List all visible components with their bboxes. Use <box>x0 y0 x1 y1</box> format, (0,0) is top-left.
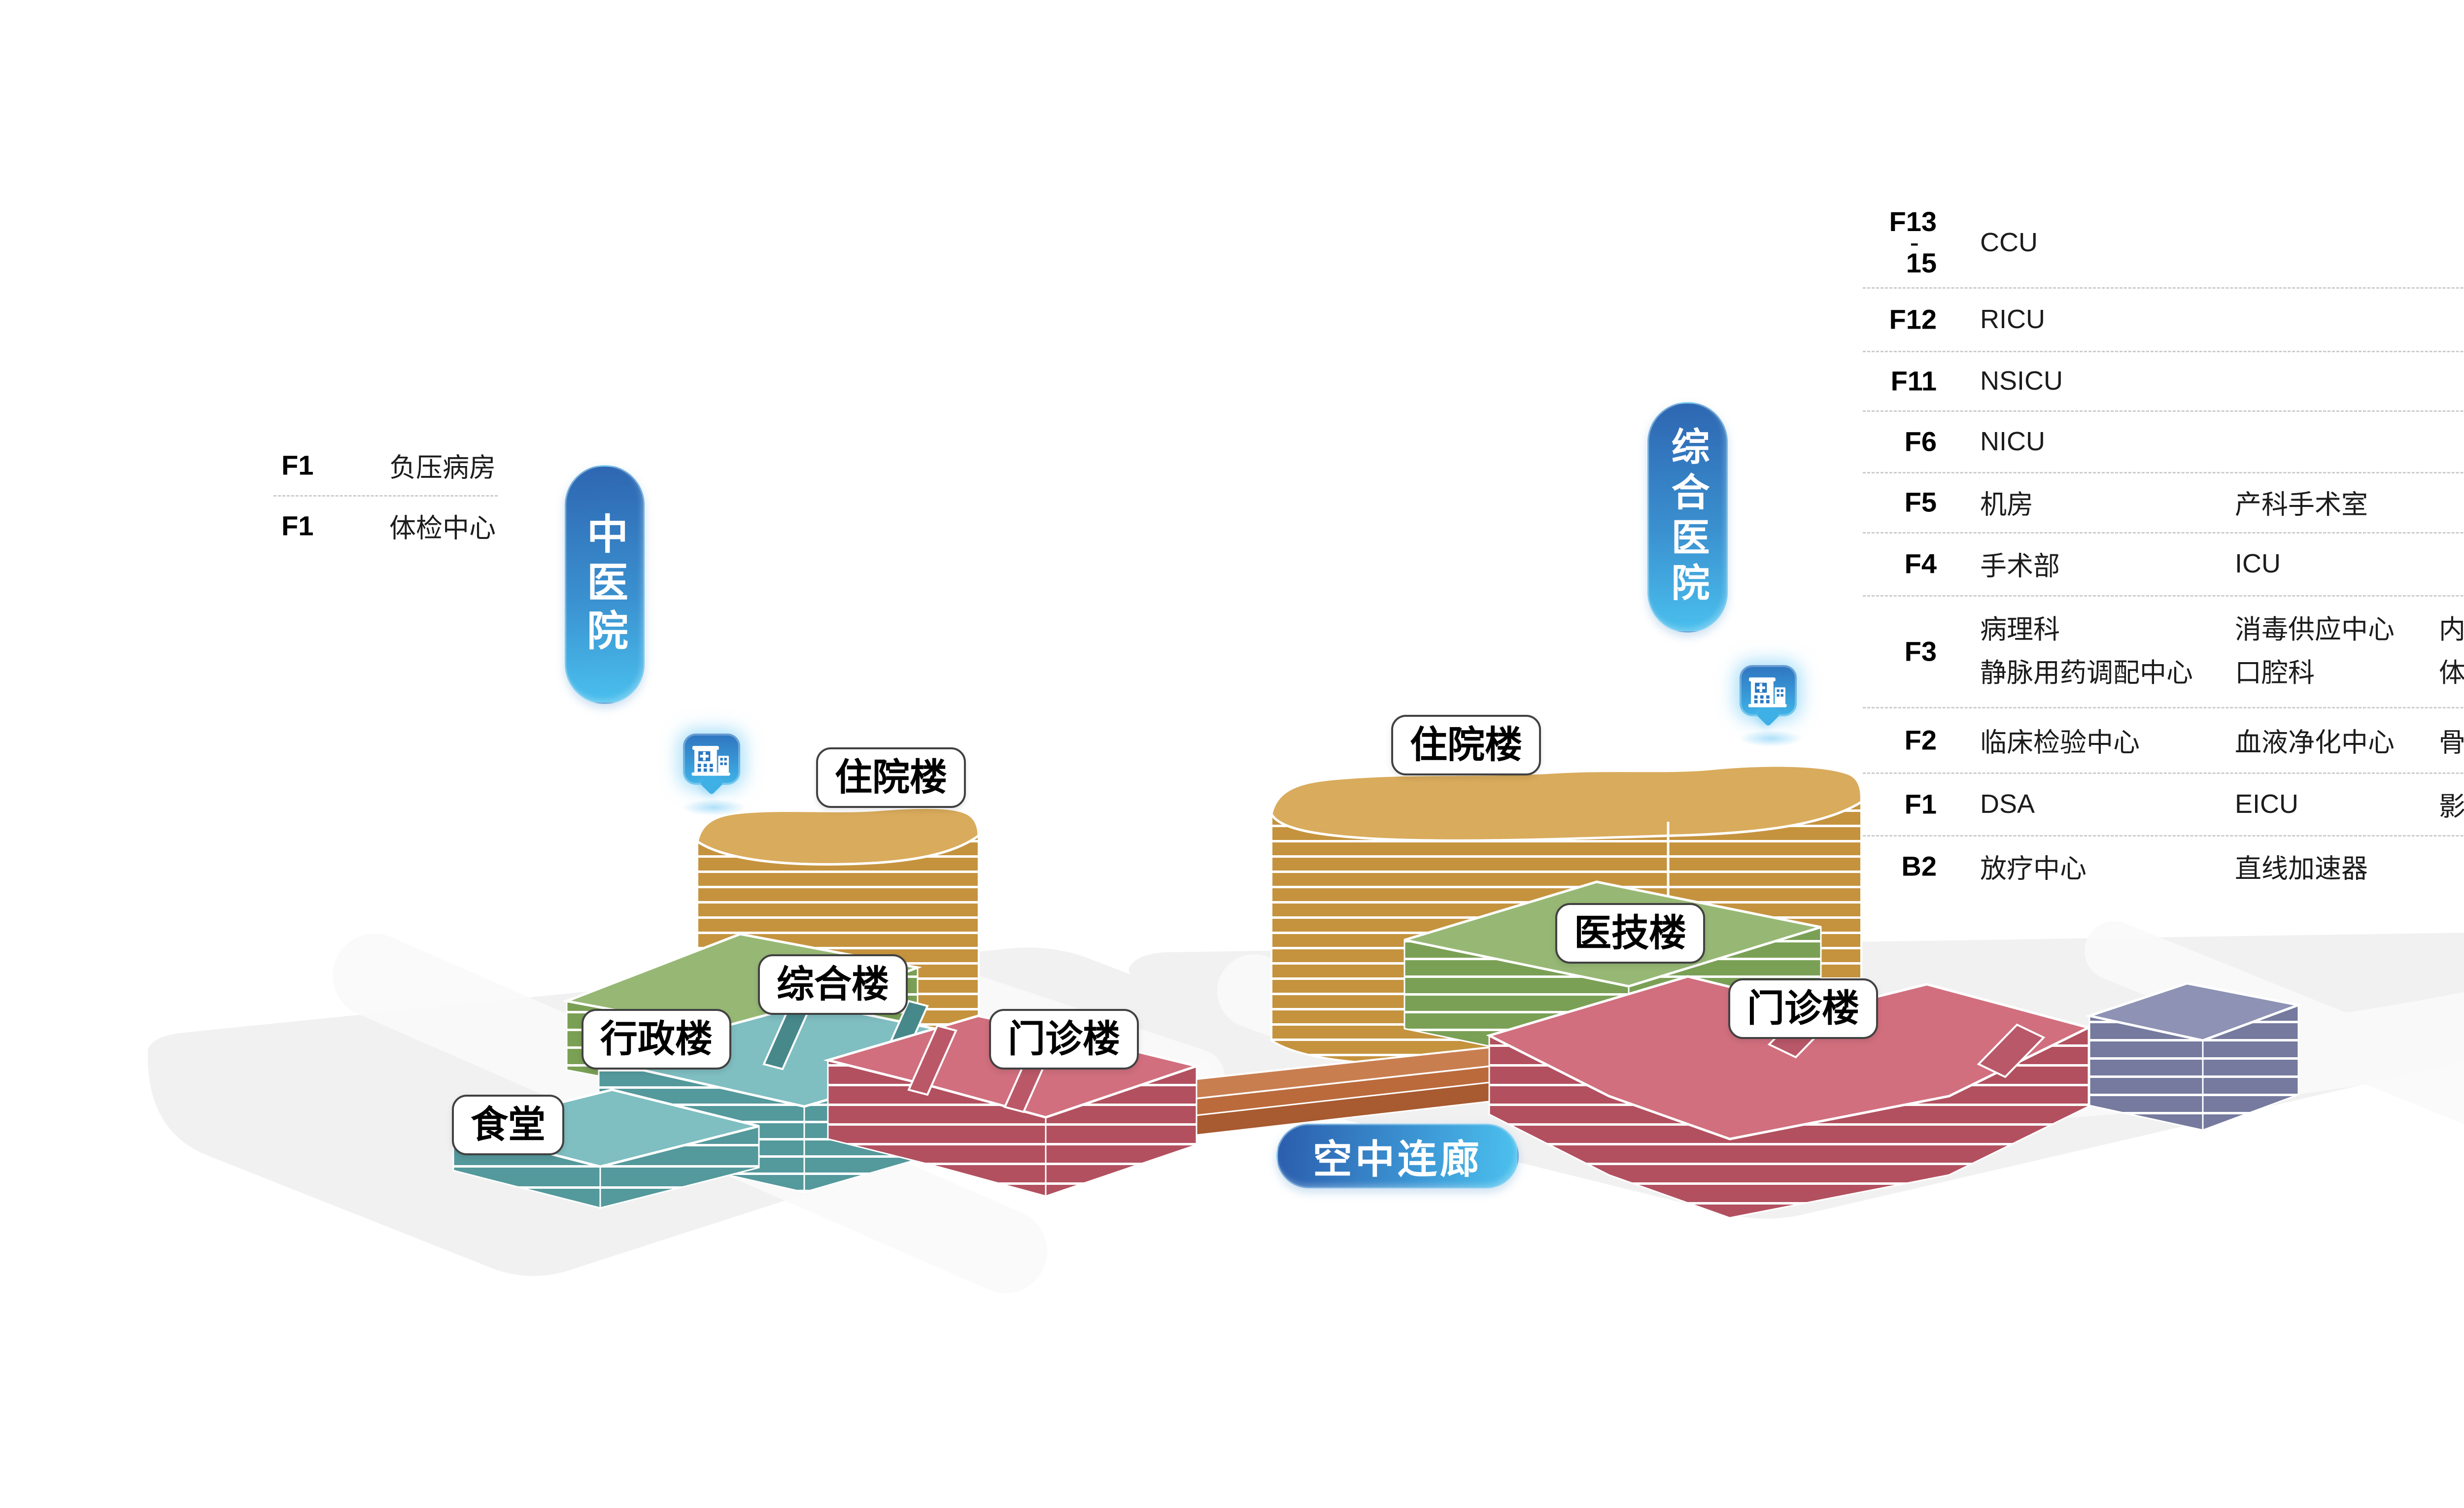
department-name: CCU <box>1980 227 2038 258</box>
left-floor-directory: F1 负压病房 F1 体检中心 <box>274 435 505 558</box>
floor-label: F12 <box>1863 303 1937 335</box>
floor-row: F6 NICU <box>1863 410 2464 472</box>
department-name: 病理科 静脉用药调配中心 <box>1980 608 2193 695</box>
department-name: RICU <box>1980 304 2045 335</box>
label-left-outpatient[interactable]: 门诊楼 <box>989 1009 1139 1070</box>
floor-row: F4 手术部 ICU <box>1863 532 2464 595</box>
right-campus-pill[interactable]: 综合医院 <box>1647 402 1728 633</box>
hospital-building-icon <box>690 740 733 778</box>
floor-label: F13 - 15 <box>1863 207 1937 277</box>
department-name: 影像中心 <box>2439 784 2464 823</box>
floor-row: F12 RICU <box>1863 287 2464 351</box>
label-left-admin[interactable]: 行政楼 <box>582 1009 731 1070</box>
sky-bridge-pill[interactable]: 空中连廊 <box>1276 1124 1519 1188</box>
department-name: ICU <box>2235 548 2281 579</box>
floor-row: F3 病理科 静脉用药调配中心 消毒供应中心 口腔科 内镜中心 体外碎石中心 <box>1863 595 2464 707</box>
floor-label: F1 <box>1863 788 1937 820</box>
floor-label: F2 <box>1863 724 1937 756</box>
department-name: 消毒供应中心 口腔科 <box>2235 608 2395 695</box>
label-left-inpatient[interactable]: 住院楼 <box>816 747 966 808</box>
floor-label: F3 <box>1863 635 1937 667</box>
department-name: 临床检验中心 <box>1980 720 2140 759</box>
department-name: 产科手术室 <box>2235 483 2368 522</box>
hospital-campus-map: 中医院 综合医院 空中连廊 <box>0 0 2464 1508</box>
floor-label: F1 <box>281 449 313 481</box>
department-name: NICU <box>1980 426 2045 457</box>
floor-label: B2 <box>1863 850 1937 882</box>
floor-row: F2 临床检验中心 血液净化中心 骨密度 <box>1863 707 2464 772</box>
label-right-outpatient[interactable]: 门诊楼 <box>1728 978 1878 1039</box>
label-canteen[interactable]: 食堂 <box>452 1095 564 1155</box>
label-left-complex[interactable]: 综合楼 <box>758 954 908 1015</box>
floor-row: F1 体检中心 <box>274 495 505 556</box>
right-hospital-marker-icon[interactable] <box>1740 665 1797 716</box>
department-name: 内镜中心 体外碎石中心 <box>2439 608 2464 695</box>
marker-shadow <box>1739 730 1803 747</box>
department-name: 负压病房 <box>389 445 496 484</box>
floor-row: F1 负压病房 <box>274 435 505 495</box>
floor-label: F1 <box>281 509 313 541</box>
label-right-medtech[interactable]: 医技楼 <box>1555 903 1705 964</box>
marker-shadow <box>682 799 746 816</box>
department-name: 直线加速器 <box>2235 846 2368 885</box>
department-name: NSICU <box>1980 366 2063 396</box>
department-name: 体检中心 <box>389 506 496 545</box>
left-hospital-marker-icon[interactable] <box>683 734 740 785</box>
floor-label: F6 <box>1863 425 1937 457</box>
floor-row: F5 机房 产科手术室 <box>1863 472 2464 532</box>
department-name: 血液净化中心 <box>2235 720 2395 759</box>
floor-row: F1 DSA EICU 影像中心 <box>1863 772 2464 835</box>
floor-label: F4 <box>1863 548 1937 580</box>
left-campus-pill[interactable]: 中医院 <box>565 465 645 704</box>
department-name: EICU <box>2235 789 2298 819</box>
department-name: DSA <box>1980 789 2035 819</box>
floor-label: F11 <box>1863 365 1937 397</box>
department-name: 机房 <box>1980 483 2033 522</box>
department-name: 骨密度 <box>2439 720 2464 759</box>
right-floor-directory: F13 - 15 CCU F12 RICU F11 NSICU F6 NICU … <box>1863 192 2464 906</box>
label-right-inpatient[interactable]: 住院楼 <box>1391 715 1541 775</box>
floor-row: B2 放疗中心 直线加速器 <box>1863 835 2464 897</box>
hospital-building-icon <box>1747 672 1789 709</box>
department-name: 放疗中心 <box>1980 846 2087 885</box>
floor-row: F13 - 15 CCU <box>1863 197 2464 287</box>
right-annex-building[interactable] <box>2089 983 2298 1130</box>
floor-label: F5 <box>1863 486 1937 518</box>
floor-row: F11 NSICU <box>1863 351 2464 410</box>
department-name: 手术部 <box>1980 544 2060 583</box>
